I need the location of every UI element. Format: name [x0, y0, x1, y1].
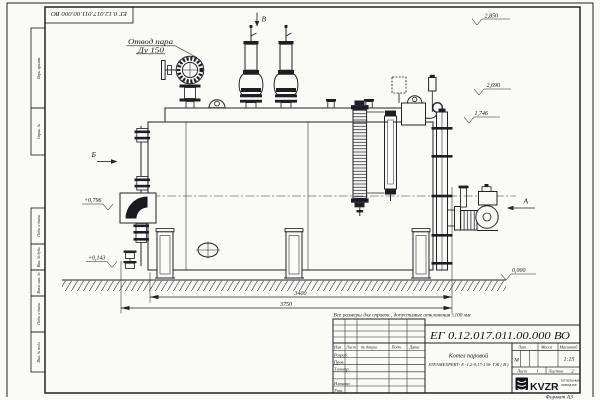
safety-valve-2	[274, 25, 298, 108]
lit-header: Лит.	[517, 345, 527, 350]
view-label: В	[262, 15, 267, 24]
sheet-value: 1	[537, 369, 539, 374]
company-logo-text: KVZR	[530, 381, 559, 393]
view-arrow-top: В	[255, 13, 267, 27]
elevation-mark-1746: 1,746	[464, 110, 500, 123]
dimension-value: 3750	[279, 302, 292, 308]
fan-scroll	[476, 206, 498, 228]
col-header: Подп.	[391, 345, 402, 350]
front-flanged-stack	[134, 223, 150, 242]
support-leg	[284, 229, 304, 278]
col-header: Дата	[409, 345, 420, 350]
drain-fittings	[124, 251, 137, 269]
elevation-value: 1,746	[475, 110, 489, 117]
steam-outlet-valve	[162, 56, 204, 108]
margin-box-label: Подп. и дата	[37, 215, 41, 238]
rear-flange-strip	[432, 109, 453, 270]
front-nozzle	[135, 177, 151, 191]
title-block: ЕГ 0.12.017.011.00.000 ВО Изм. Лист № до…	[333, 319, 580, 393]
row-label: Утв.	[334, 388, 343, 393]
margin-box-label: Перв. примен.	[37, 57, 41, 81]
kvzr-logo: KVZR КОТЕЛЬНЫЙ ЗАВОД РФ	[516, 378, 581, 393]
drawing-sheet: Перв. примен. Справ. № Подп. и дата Инв.…	[0, 0, 600, 400]
product-name-line1: Котел паровой	[448, 353, 489, 360]
lifting-lug	[209, 100, 225, 108]
sight-glass-gauge	[367, 111, 397, 202]
elevation-value: 2,850	[485, 14, 499, 20]
row-label: Т.контр.	[334, 367, 350, 372]
boiler-general-view-drawing: Перв. примен. Справ. № Подп. и дата Инв.…	[0, 0, 600, 400]
col-header: № докум.	[360, 345, 378, 350]
margin-box-label: Инв. № подл.	[37, 341, 41, 363]
row-label: Н.контр.	[333, 381, 351, 386]
reference-note: Все размеры для справок , допустимые отк…	[334, 314, 471, 319]
sheets-value: 2	[572, 369, 575, 374]
title-designation: ЕГ 0.12.017.011.00.000 ВО	[429, 331, 570, 342]
elevation-value: +0,796	[84, 198, 102, 204]
ground-hatching	[62, 280, 506, 291]
draft-fan-assembly	[448, 184, 499, 231]
scale-value: 1:15	[564, 357, 575, 363]
boiler-side-view	[136, 108, 516, 270]
lit-value: М	[513, 358, 519, 364]
callout-line2: Ду 150	[137, 46, 165, 55]
deck-nozzle-stub	[326, 99, 336, 108]
support-leg	[411, 229, 431, 278]
dimension-value: 3400	[294, 290, 307, 297]
elevation-value: 2,690	[487, 83, 501, 89]
steam-outlet-callout: Отвод пара Ду 150	[127, 37, 198, 58]
view-arrow-right: А	[507, 197, 535, 211]
margin-box-label: Справ. №	[37, 123, 41, 139]
view-label: Б	[91, 150, 97, 159]
scale-header: Масштаб	[559, 345, 579, 350]
top-designation-box: ЕГ 0.12.017.011.00.000 ВО	[45, 7, 133, 23]
kvzr-logo-icon	[516, 378, 529, 391]
mass-header: Масса	[540, 345, 552, 350]
margin-box-label: Инв. № дубл.	[37, 247, 41, 269]
sensor-cylinder	[429, 78, 436, 92]
view-label: А	[523, 197, 529, 206]
dashed-outline-box	[392, 77, 406, 93]
upper-revision-table	[333, 319, 425, 343]
sheets-label: Листов	[548, 369, 563, 374]
margin-column: Перв. примен. Справ. № Подп. и дата Инв.…	[31, 28, 45, 372]
front-nozzle	[135, 129, 151, 143]
col-header: Изм.	[333, 345, 342, 350]
elevation-value: +0,143	[88, 255, 106, 262]
top-designation-text: ЕГ 0.12.017.011.00.000 ВО	[50, 10, 128, 16]
product-name-cell	[425, 343, 512, 393]
margin-box-label: Взам. инв. №	[37, 272, 41, 293]
row-label: Пров.	[333, 360, 344, 365]
col-header: Лист	[345, 345, 356, 350]
row-label: Разраб.	[333, 352, 348, 357]
manhole	[196, 242, 220, 259]
valve-handwheel	[162, 61, 177, 80]
margin-box-label: Подп. и дата	[37, 303, 41, 326]
burner-assembly	[120, 193, 156, 223]
view-arrow-left: Б	[91, 150, 118, 164]
format-label: Формат А3	[546, 395, 574, 400]
control-box	[402, 103, 426, 125]
elevation-mark-0000: 0,000	[501, 268, 536, 280]
elevation-mark-2850: 2,850	[472, 14, 510, 26]
fan-motor	[479, 192, 498, 206]
company-sub-line2: ЗАВОД РФ	[561, 383, 577, 387]
product-name-line2: STEAMEXPERT- Е -1,2-0,17-130- ГЖ ( В )	[429, 362, 510, 368]
elevation-mark-2690: 2,690	[474, 83, 511, 95]
control-box-assembly	[392, 75, 442, 125]
support-leg	[155, 229, 175, 278]
elevation-mark-0796: +0,796	[82, 198, 113, 210]
elevation-mark-0143: +0,143	[86, 255, 117, 268]
elevation-value: 0,000	[512, 268, 526, 274]
safety-valve-1	[239, 25, 263, 108]
sheet-label: Лист	[516, 369, 527, 374]
water-level-gauge-column	[351, 101, 369, 217]
